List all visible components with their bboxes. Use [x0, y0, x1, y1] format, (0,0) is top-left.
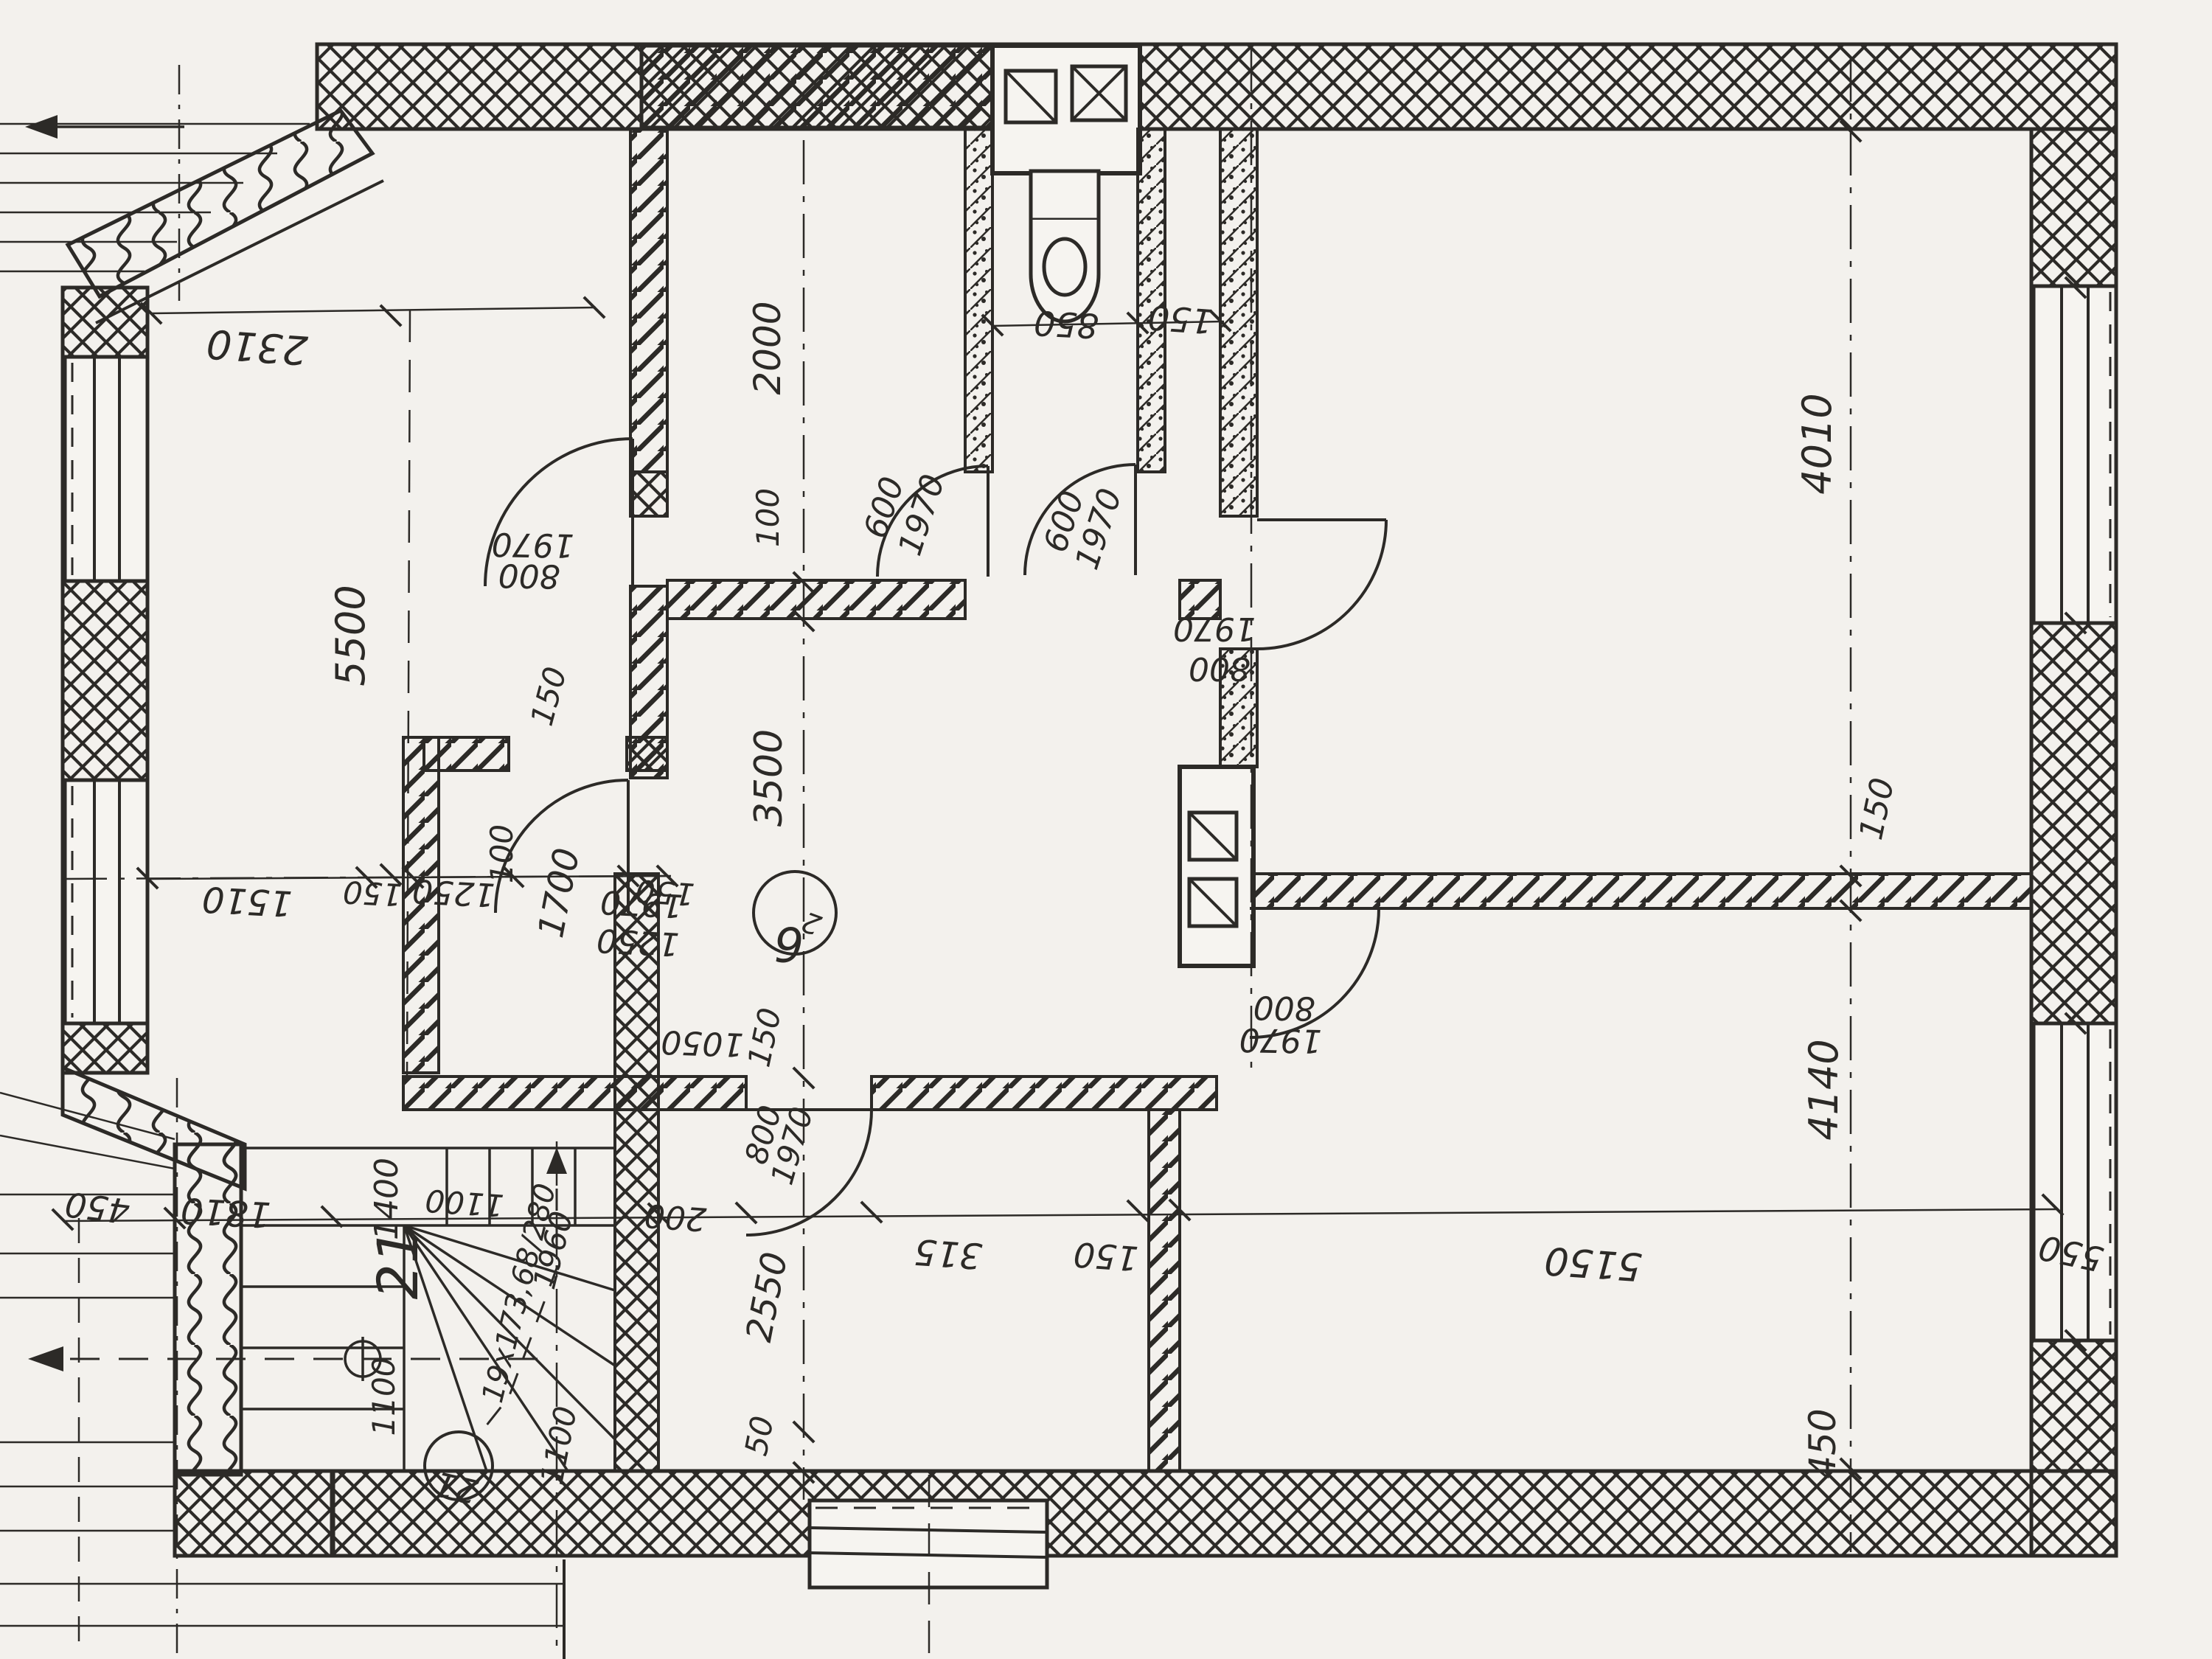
dim-label: 800: [1189, 650, 1251, 687]
dim-label: 200: [643, 1196, 707, 1238]
dim-label: 50: [738, 1413, 781, 1458]
dim-label: 100: [750, 488, 786, 547]
dim-label: 1970: [1173, 610, 1256, 647]
dim-label: 850: [1033, 303, 1100, 347]
dim-label: 6: [774, 916, 804, 970]
dim-label: 1250: [596, 921, 681, 963]
chimney-pillar: [1180, 767, 1253, 966]
dim-label: 2310: [205, 320, 309, 373]
dim-label: 1970: [599, 883, 684, 925]
dim-label: 1510: [201, 878, 293, 924]
toilet: [1031, 171, 1099, 321]
floor-plan-canvas: 2310550020008501506001970600197019708004…: [0, 0, 2212, 1659]
dim-label: 150: [1147, 297, 1214, 341]
window-left-1: [65, 357, 147, 581]
dim-label: 1050: [661, 1023, 745, 1063]
dim-label: 800: [498, 556, 560, 594]
dim-label: 150: [342, 874, 403, 913]
dim-label: 315: [913, 1231, 983, 1276]
dim-label: 1810: [180, 1189, 272, 1235]
window-right-2: [2034, 1023, 2116, 1340]
dim-label: 450: [63, 1184, 132, 1231]
chimney-block-top: [992, 46, 1140, 173]
dim-label: 2000: [746, 301, 789, 394]
floor-plan-sheet: 2310550020008501506001970600197019708004…: [0, 0, 2212, 1659]
dim-label: 1400: [368, 1158, 406, 1240]
dim-label: 21: [365, 1228, 431, 1300]
dim-label: 150: [1072, 1234, 1139, 1279]
dim-label: 100: [484, 824, 520, 883]
dim-label: 1970: [1239, 1020, 1322, 1060]
dim-label: 5500: [327, 585, 374, 686]
dim-label: 5150: [1543, 1237, 1644, 1288]
dim-label: 1100: [424, 1182, 505, 1223]
dim-label: 1100: [366, 1357, 402, 1436]
window-right-1: [2034, 286, 2116, 623]
dim-label: 450: [1801, 1408, 1844, 1478]
dim-label: 4140: [1801, 1039, 1847, 1140]
window-left-2: [65, 780, 147, 1023]
dim-label: 3500: [747, 729, 791, 827]
dim-label: 4010: [1794, 393, 1840, 494]
